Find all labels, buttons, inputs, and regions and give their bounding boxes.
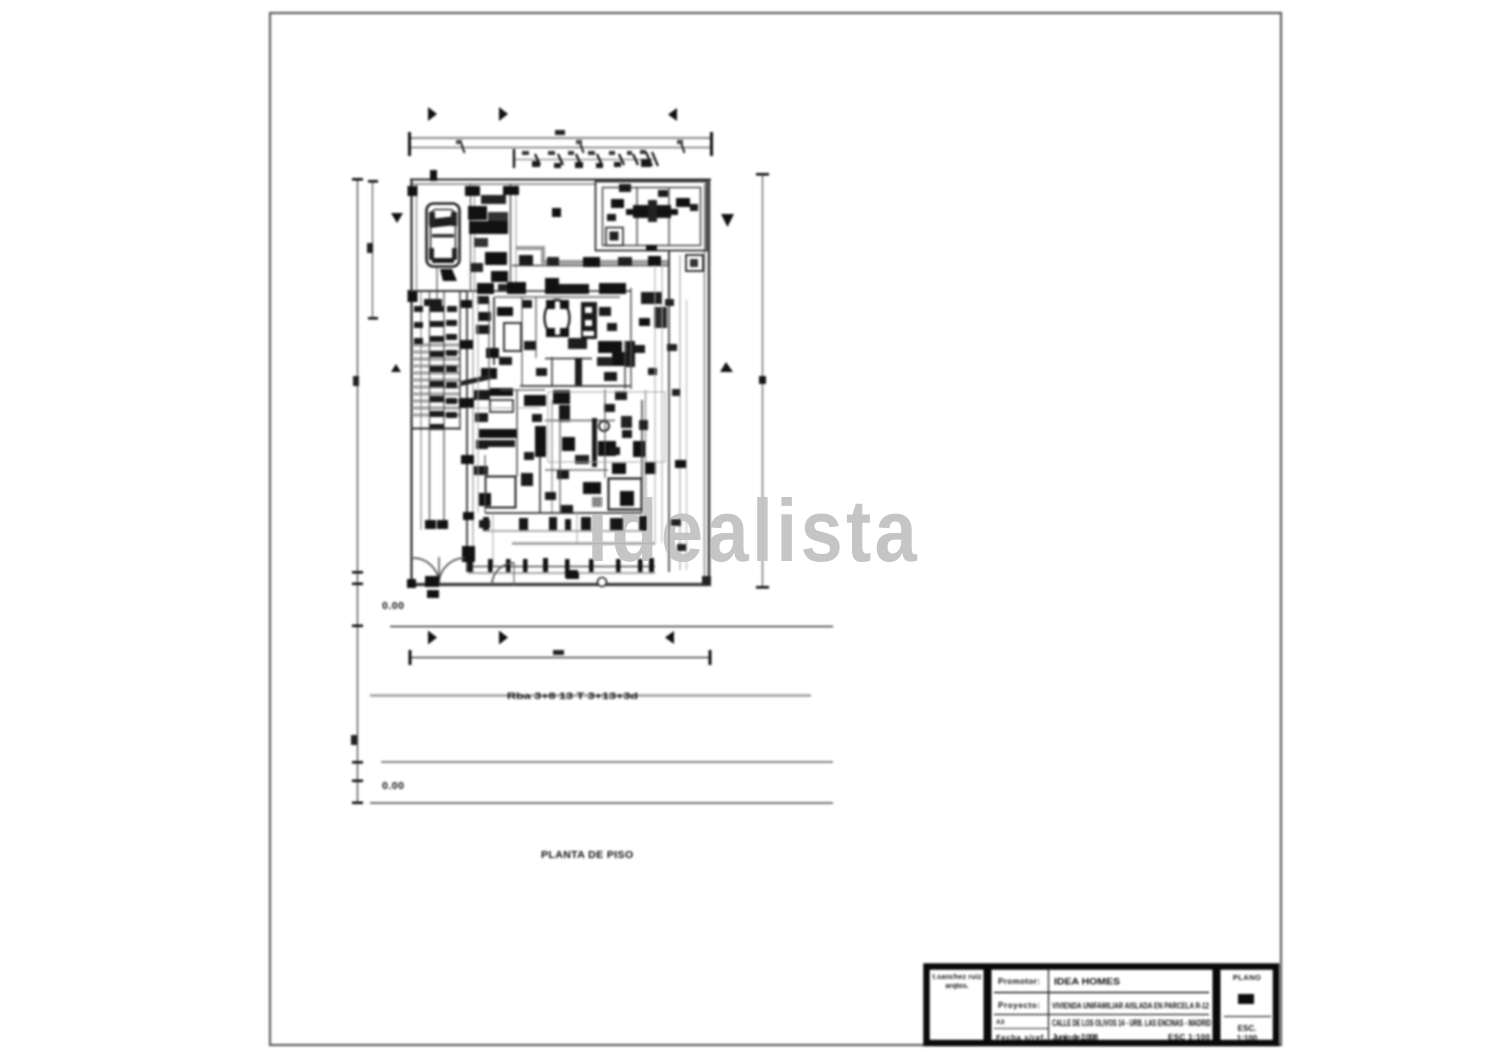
svg-text:idealista: idealista [587, 482, 920, 581]
